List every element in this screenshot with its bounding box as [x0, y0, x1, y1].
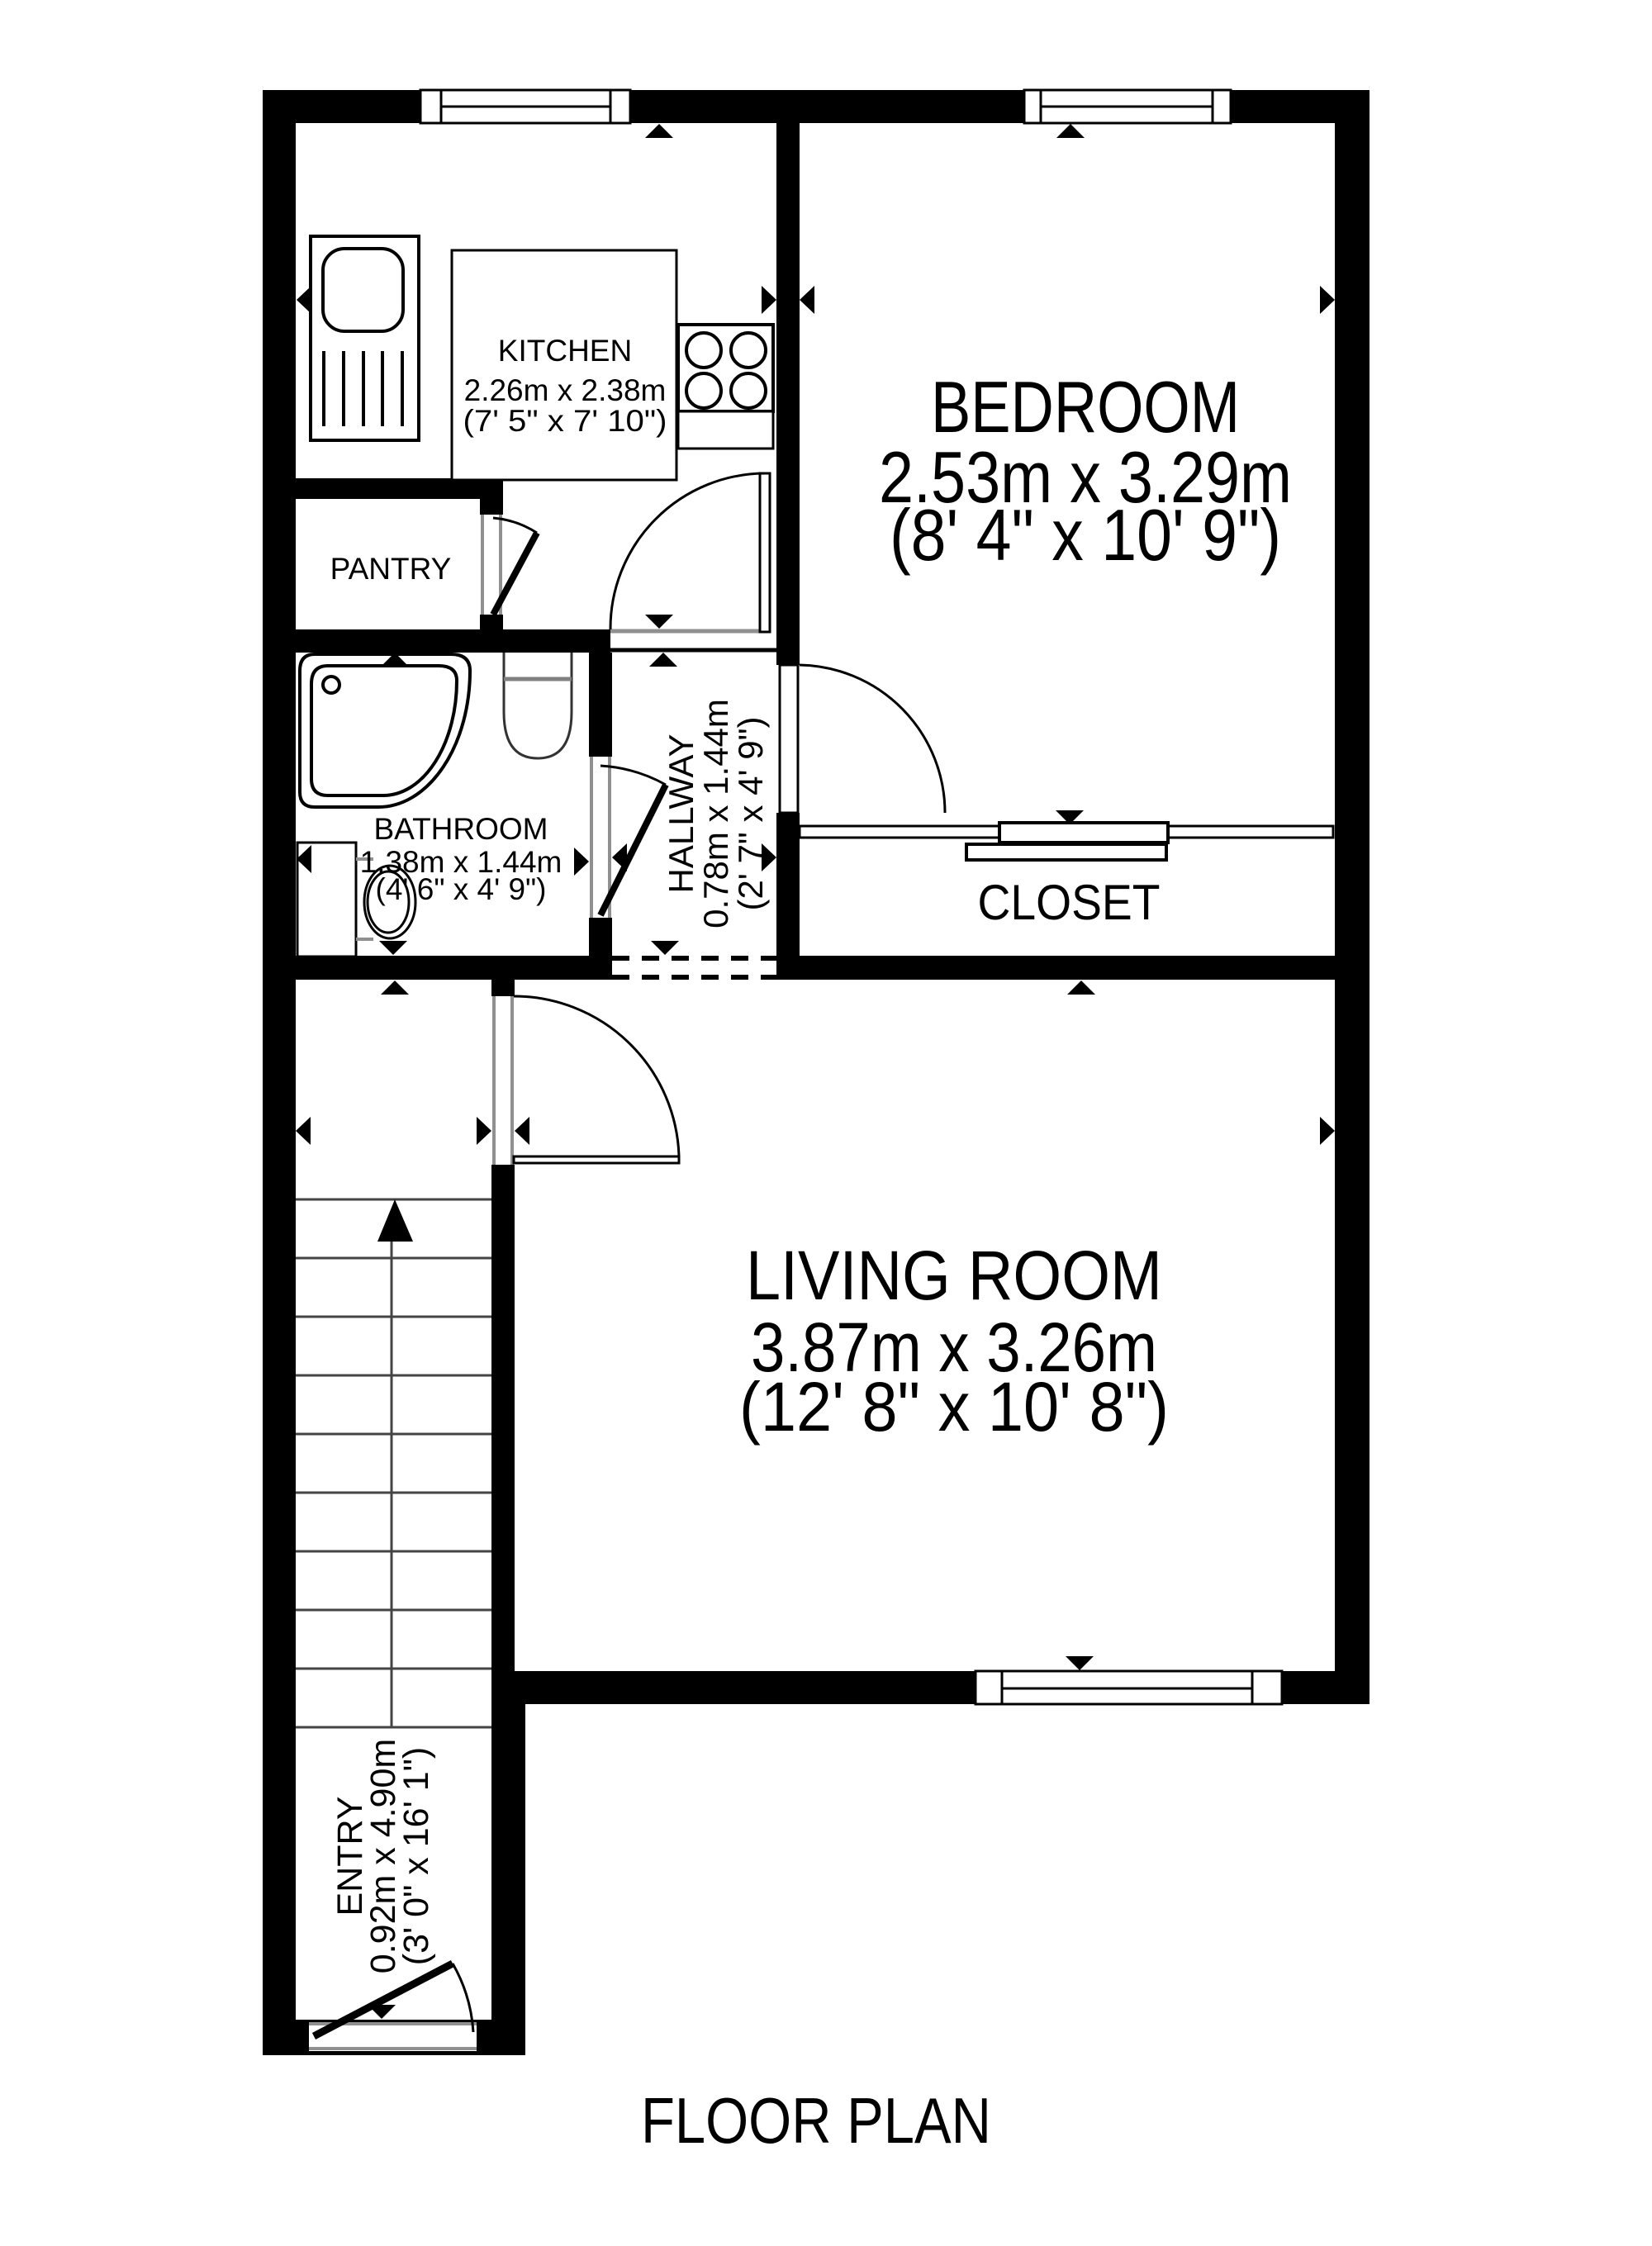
svg-text:PANTRY: PANTRY: [330, 552, 452, 586]
svg-text:(12' 8" x 10' 8"): (12' 8" x 10' 8"): [739, 1368, 1169, 1446]
svg-text:(7' 5" x 7' 10"): (7' 5" x 7' 10"): [463, 404, 667, 438]
svg-text:2.26m x 2.38m: 2.26m x 2.38m: [464, 373, 667, 407]
svg-text:(3' 0" x 16' 1"): (3' 0" x 16' 1"): [396, 1747, 436, 1965]
svg-text:HALLWAY: HALLWAY: [662, 734, 700, 894]
svg-text:FLOOR PLAN: FLOOR PLAN: [641, 2084, 991, 2157]
svg-text:(8' 4" x 10' 9"): (8' 4" x 10' 9"): [890, 494, 1281, 576]
svg-text:BATHROOM: BATHROOM: [373, 812, 548, 846]
svg-text:LIVING ROOM: LIVING ROOM: [746, 1237, 1162, 1314]
svg-text:KITCHEN: KITCHEN: [498, 334, 632, 368]
svg-text:CLOSET: CLOSET: [978, 875, 1161, 930]
svg-text:(2' 7" x 4' 9"): (2' 7" x 4' 9"): [731, 717, 770, 911]
svg-text:(4' 6" x 4' 9"): (4' 6" x 4' 9"): [376, 872, 547, 906]
svg-text:0.78m x 1.44m: 0.78m x 1.44m: [696, 699, 735, 928]
